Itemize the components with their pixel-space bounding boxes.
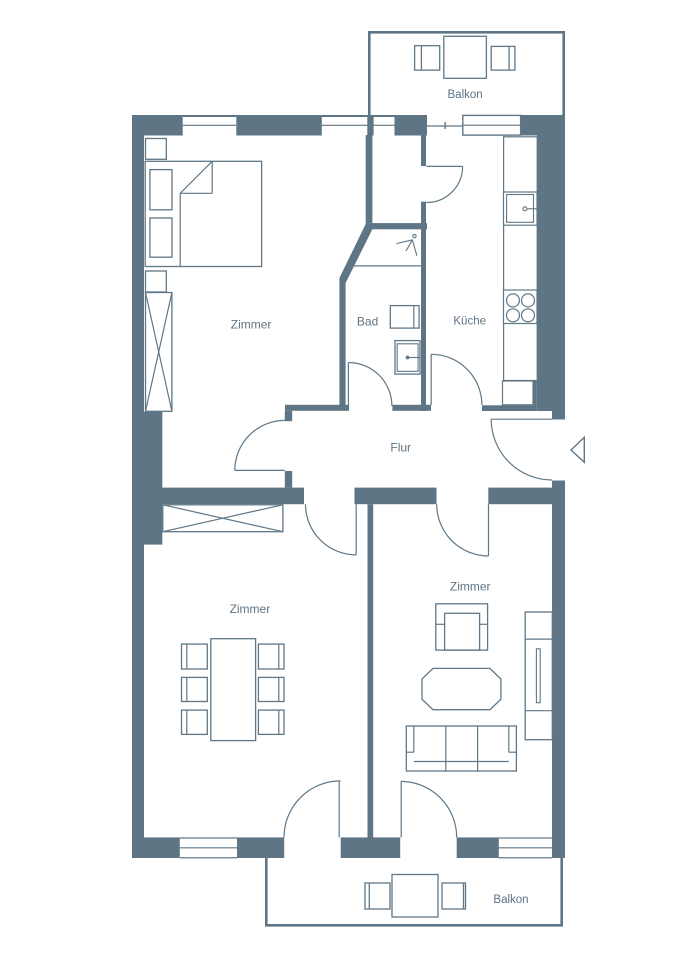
svg-text:Balkon: Balkon bbox=[493, 894, 528, 906]
svg-text:Küche: Küche bbox=[453, 316, 486, 328]
svg-text:Zimmer: Zimmer bbox=[450, 580, 491, 594]
svg-text:Bad: Bad bbox=[357, 314, 378, 328]
svg-text:Zimmer: Zimmer bbox=[230, 602, 271, 616]
svg-text:Flur: Flur bbox=[390, 441, 411, 455]
svg-text:Zimmer: Zimmer bbox=[231, 318, 272, 332]
svg-text:Balkon: Balkon bbox=[448, 89, 483, 101]
